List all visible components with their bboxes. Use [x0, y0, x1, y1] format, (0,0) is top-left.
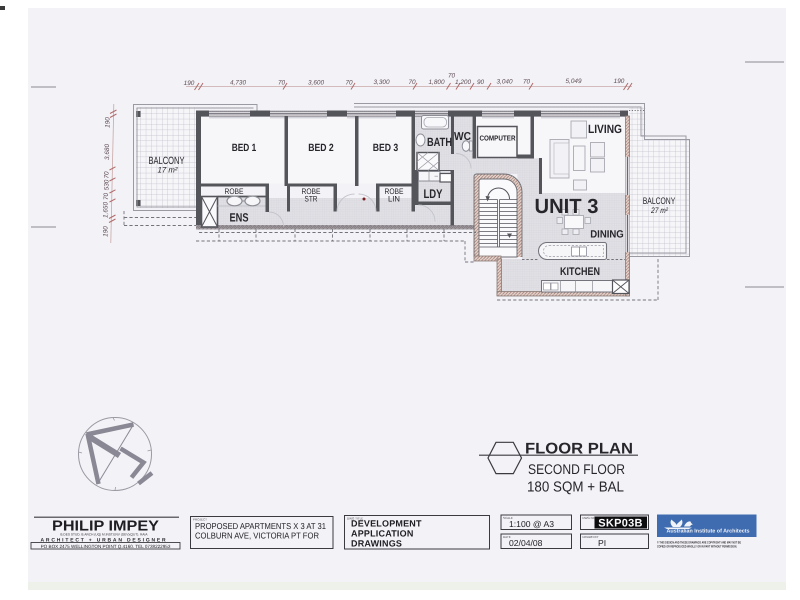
- svg-text:DRAWINGS: DRAWINGS: [351, 539, 402, 549]
- svg-text:190: 190: [103, 226, 110, 237]
- svg-text:1,800: 1,800: [429, 79, 445, 86]
- svg-text:190: 190: [105, 117, 112, 128]
- svg-text:COMPUTER: COMPUTER: [480, 134, 517, 143]
- svg-text:PO BOX 2475 WELLINGTON POINT Q: PO BOX 2475 WELLINGTON POINT Q.4160. TEL…: [41, 544, 171, 549]
- svg-text:3,680: 3,680: [104, 144, 111, 160]
- svg-text:190: 190: [184, 80, 195, 87]
- svg-text:UNIT 3: UNIT 3: [535, 195, 599, 218]
- svg-text:KITCHEN: KITCHEN: [560, 266, 600, 278]
- svg-text:BED 1: BED 1: [232, 142, 257, 154]
- svg-text:DWG NO: DWG NO: [583, 516, 596, 520]
- svg-text:1,200: 1,200: [455, 79, 471, 86]
- svg-text:LIVING: LIVING: [588, 122, 622, 136]
- svg-text:FLOOR PLAN: FLOOR PLAN: [525, 441, 633, 458]
- svg-text:17 m²: 17 m²: [158, 166, 178, 175]
- svg-text:02/04/08: 02/04/08: [509, 538, 543, 548]
- svg-text:70: 70: [103, 193, 110, 201]
- svg-text:BED 3: BED 3: [373, 142, 399, 154]
- svg-text:70: 70: [278, 80, 286, 87]
- svg-text:Australian Institute of Archit: Australian Institute of Architects: [666, 529, 749, 535]
- svg-text:70: 70: [104, 171, 111, 179]
- svg-text:70: 70: [523, 79, 531, 86]
- svg-text:SECOND FLOOR: SECOND FLOOR: [528, 461, 625, 477]
- svg-text:90: 90: [477, 79, 485, 86]
- svg-text:LDY: LDY: [424, 187, 444, 201]
- svg-text:STR: STR: [305, 195, 318, 204]
- svg-text:COLBURN AVE, VICTORIA PT FOR: COLBURN AVE, VICTORIA PT FOR: [195, 531, 319, 541]
- svg-text:5,049: 5,049: [566, 78, 582, 85]
- svg-text:3,040: 3,040: [497, 79, 513, 86]
- svg-text:70: 70: [408, 79, 416, 86]
- svg-text:ROBE: ROBE: [225, 187, 244, 196]
- svg-text:APPLICATION: APPLICATION: [351, 529, 414, 539]
- svg-text:3,600: 3,600: [308, 80, 324, 87]
- svg-text:BATH: BATH: [427, 135, 452, 149]
- svg-text:PROPOSED APARTMENTS X 3 AT 31: PROPOSED APARTMENTS X 3 AT 31: [195, 521, 326, 531]
- svg-text:ENS: ENS: [230, 211, 249, 225]
- svg-text:WC: WC: [454, 131, 471, 143]
- svg-text:DEVELOPMENT: DEVELOPMENT: [351, 519, 422, 529]
- svg-text:1,650: 1,650: [103, 202, 110, 218]
- svg-text:PI: PI: [598, 538, 606, 548]
- svg-text:190: 190: [614, 78, 625, 85]
- svg-text:LIN: LIN: [388, 195, 400, 204]
- svg-text:B.DES STUD. B.ARCH (UQ) M.INST: B.DES STUD. B.ARCH (UQ) M.INST.ENV (DEV)…: [60, 533, 148, 537]
- svg-text:BED 2: BED 2: [308, 142, 334, 154]
- svg-text:SKP03B: SKP03B: [598, 518, 643, 530]
- svg-text:DRAWN BY: DRAWN BY: [583, 535, 599, 539]
- svg-text:4,730: 4,730: [230, 80, 246, 87]
- svg-text:530: 530: [104, 179, 111, 190]
- svg-text:DINING: DINING: [590, 229, 624, 241]
- svg-text:180 SQM + BAL: 180 SQM + BAL: [527, 480, 624, 496]
- svg-text:70: 70: [345, 80, 353, 87]
- svg-text:COPIED OR REPRODUCED WHOLLY OR: COPIED OR REPRODUCED WHOLLY OR IN PART W…: [657, 545, 737, 549]
- svg-text:3,300: 3,300: [374, 79, 390, 86]
- svg-text:1:100 @ A3: 1:100 @ A3: [509, 519, 554, 529]
- svg-text:27 m²: 27 m²: [650, 206, 668, 215]
